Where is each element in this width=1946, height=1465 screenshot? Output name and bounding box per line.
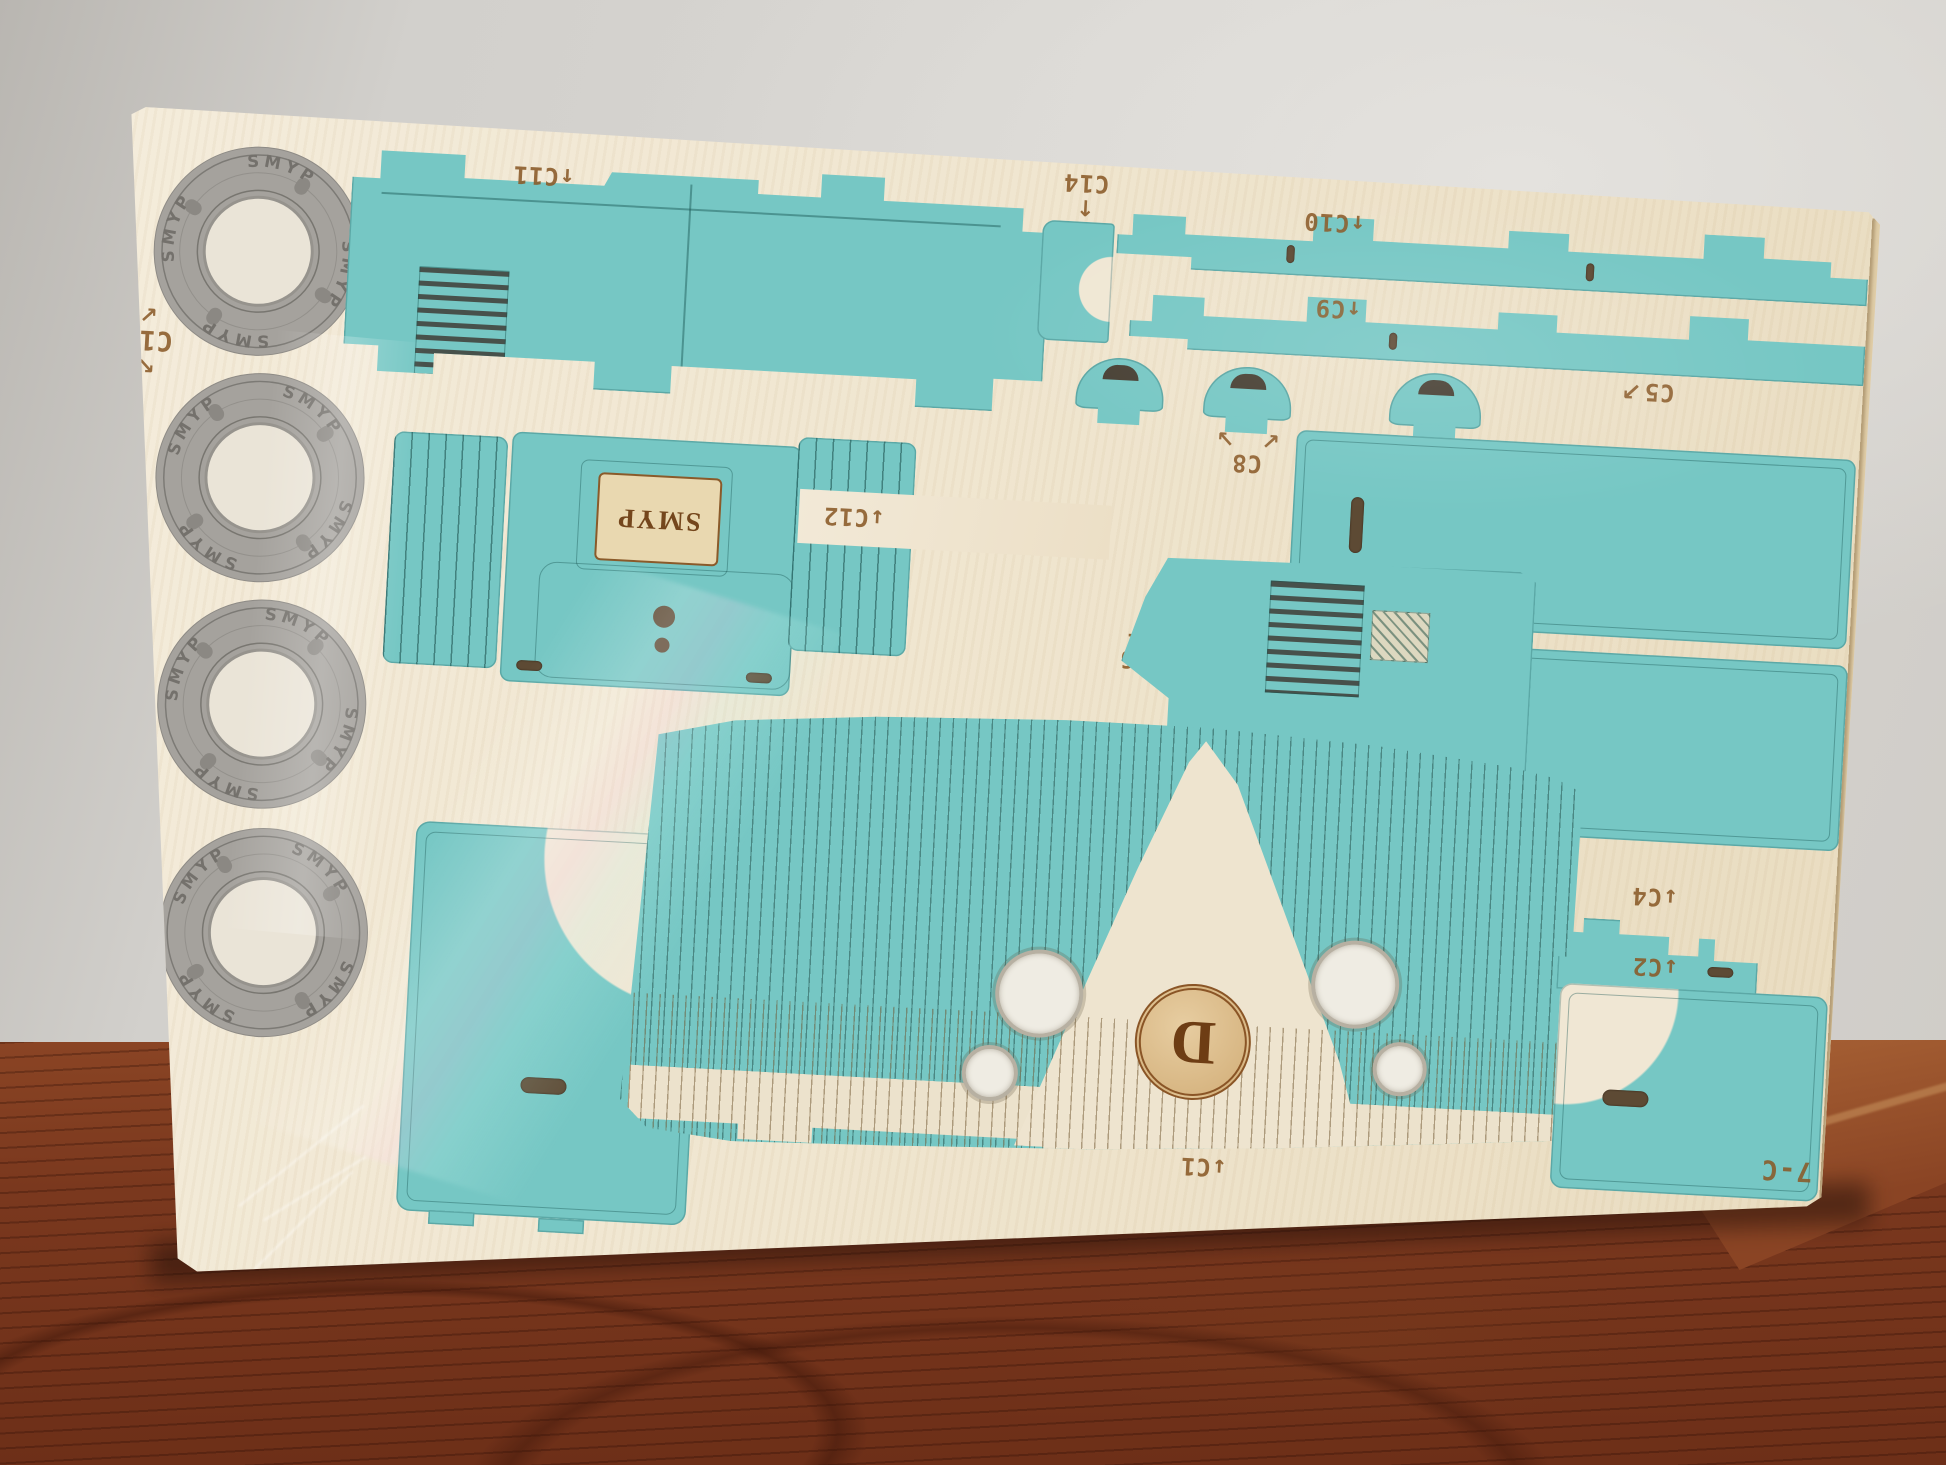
piece-c10-running-board [1116, 196, 1871, 307]
part-label-text: ↓C12 [822, 501, 885, 532]
wheel-part-1: SMYP SMYP SMYP SMYP [145, 138, 372, 365]
wheel-part-4: SMYP SMYP SMYP SMYP [150, 819, 377, 1046]
part-label-c4: ↓C4 [1631, 882, 1679, 910]
part-label-c8: C8 ↙ ↘ [1214, 425, 1281, 477]
part-label-c5: C5 ↗ [1620, 377, 1675, 405]
slot-hole [1602, 1089, 1649, 1107]
part-label-text: ↓C4 [1631, 882, 1679, 912]
slot-hole [1586, 263, 1595, 281]
slot-hole [1389, 333, 1398, 350]
plywood-kit-sheet: SMYP SMYP SMYP SMYP SMYP SMYP SMYP SMYP [65, 104, 1885, 1362]
engraved-cut-line [679, 185, 692, 393]
slot-hole [520, 1077, 567, 1095]
part-label-text: ↓C1 [1179, 1152, 1227, 1182]
piece-c8-dome [1389, 371, 1484, 430]
brand-plate: SMYP [594, 472, 723, 567]
part-label-text: ↓C2 [1631, 952, 1679, 982]
part-label-text: C5 [1643, 378, 1675, 405]
part-label-c9: ↑C9 [1314, 294, 1362, 322]
part-label-c14: ↑ C14 [1061, 169, 1110, 220]
part-label-text: ↑C10 [1303, 207, 1366, 238]
piece-c12-boiler-front: SMYP [499, 431, 802, 696]
slot-hole [746, 672, 773, 683]
piece-tab [538, 1218, 585, 1234]
brand-plate-text: SMYP [615, 502, 701, 538]
piece-tab [428, 1210, 475, 1226]
piece-c11-cab-roof [342, 144, 1054, 414]
part-label-text: C14 [1062, 168, 1110, 198]
slot-hole [1707, 967, 1734, 978]
plastic-wrinkle [263, 1156, 366, 1221]
part-label-c12: ↓C12 [822, 502, 885, 530]
piece-c8-dome [1075, 356, 1166, 413]
piece-c8-dome [1203, 365, 1294, 422]
part-label-text: ↑C9 [1314, 294, 1362, 324]
medallion-letter: D [1169, 1010, 1217, 1074]
slot-hole [516, 660, 543, 671]
piece-c14-bracket [1037, 220, 1115, 344]
part-label-c11: ↑C11 [512, 161, 575, 189]
arrow-icon: ↗ [1620, 377, 1642, 403]
arrow-icon: ↙ [1260, 428, 1281, 452]
part-label-c1: ↓C1 [1179, 1152, 1227, 1180]
slot-hole [1286, 245, 1295, 263]
louver-vents [414, 266, 510, 379]
sheet-code-label: 7-C [1760, 1154, 1813, 1185]
part-label-text: ↑C11 [512, 160, 575, 191]
louver-vents [1265, 581, 1365, 698]
part-label-text: C8 [1230, 448, 1262, 478]
plastic-wrinkle [238, 1105, 364, 1207]
plastic-wrinkle [253, 1171, 354, 1271]
wheel-part-3: SMYP SMYP SMYP SMYP [148, 590, 375, 817]
part-label-c2: ↓C2 [1631, 953, 1679, 981]
piece-c1-boiler-wrap [617, 693, 1585, 1195]
wheel-part-2: SMYP SMYP SMYP SMYP [146, 364, 373, 591]
photo-scene: SMYP SMYP SMYP SMYP SMYP SMYP SMYP SMYP [0, 0, 1946, 1465]
sheet-code-text: 7-C [1760, 1153, 1813, 1187]
part-label-c10: ↑C10 [1303, 208, 1366, 236]
engraved-teeth-lines [626, 993, 1561, 1191]
piece-comb-left [382, 431, 508, 669]
arrow-icon: ↘ [1215, 425, 1236, 449]
hatched-panel [1370, 610, 1431, 663]
